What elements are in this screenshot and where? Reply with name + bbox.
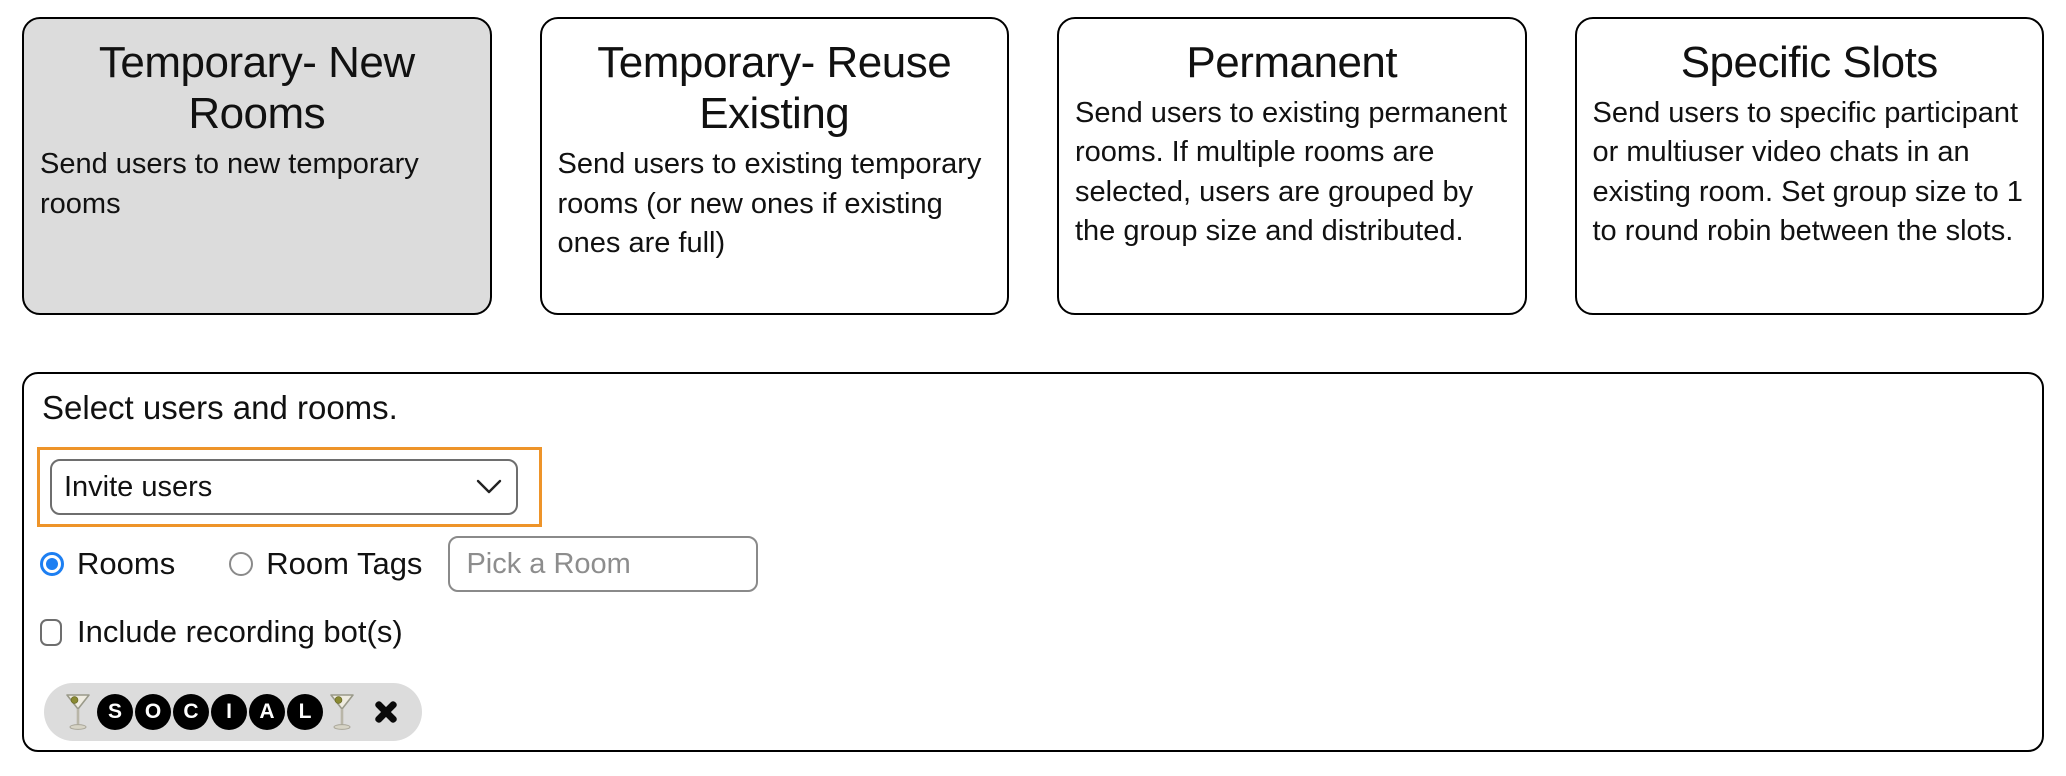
method-card-temporary-new-rooms[interactable]: Temporary- New Rooms Send users to new t…: [22, 17, 492, 315]
room-chip-social: S O C I A L: [44, 683, 422, 741]
include-recording-bots-checkbox[interactable]: [40, 619, 62, 646]
method-card-specific-slots[interactable]: Specific Slots Send users to specific pa…: [1575, 17, 2045, 315]
invite-users-select[interactable]: Invite users: [50, 459, 518, 515]
card-title: Temporary- Reuse Existing: [558, 37, 992, 139]
card-title: Specific Slots: [1593, 37, 2027, 88]
pick-a-room-input[interactable]: [448, 536, 758, 592]
rooms-radio[interactable]: [40, 552, 64, 576]
selected-rooms-row: S O C I A L: [44, 683, 2022, 741]
card-description: Send users to existing temporary rooms (…: [558, 145, 992, 263]
card-title: Temporary- New Rooms: [40, 37, 474, 139]
select-highlight-outline: Invite users: [37, 447, 542, 527]
cocktail-icon: [329, 693, 355, 731]
include-recording-bots-label: Include recording bot(s): [77, 614, 403, 650]
card-description: Send users to existing permanent rooms. …: [1075, 94, 1509, 252]
recording-bot-row: Include recording bot(s): [40, 614, 2022, 650]
circled-letter: I: [211, 694, 247, 730]
room-tags-radio[interactable]: [229, 552, 253, 576]
circled-letter: S: [97, 694, 133, 730]
circled-letter: O: [135, 694, 171, 730]
circled-letter: C: [173, 694, 209, 730]
card-title: Permanent: [1075, 37, 1509, 88]
room-mode-row: Rooms Room Tags: [40, 536, 2022, 592]
card-description: Send users to specific participant or mu…: [1593, 94, 2027, 252]
method-card-temporary-reuse-existing[interactable]: Temporary- Reuse Existing Send users to …: [540, 17, 1010, 315]
circled-letter: L: [287, 694, 323, 730]
method-cards-row: Temporary- New Rooms Send users to new t…: [0, 0, 2066, 315]
method-card-permanent[interactable]: Permanent Send users to existing permane…: [1057, 17, 1527, 315]
chip-remove-button[interactable]: [372, 698, 400, 726]
room-tags-radio-label: Room Tags: [266, 546, 422, 582]
circled-letter: A: [249, 694, 285, 730]
rooms-radio-label: Rooms: [77, 546, 175, 582]
cocktail-icon: [65, 693, 91, 731]
select-users-rooms-panel: Select users and rooms. Invite users Roo…: [22, 372, 2044, 752]
card-description: Send users to new temporary rooms: [40, 145, 474, 224]
panel-heading: Select users and rooms.: [42, 390, 2022, 426]
